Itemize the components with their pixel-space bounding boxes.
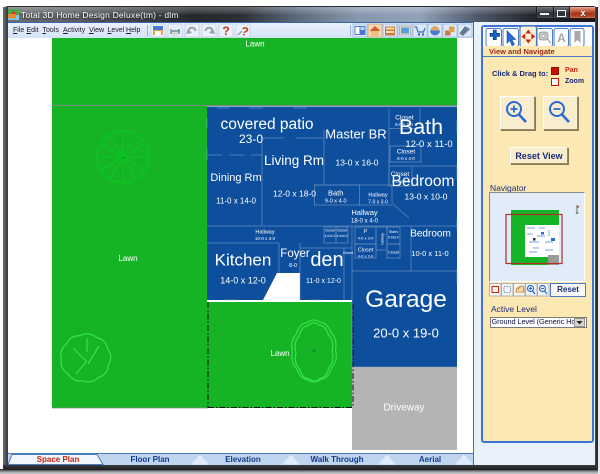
svg-text:Aerial: Aerial: [419, 455, 441, 464]
svg-text:Hallway: Hallway: [255, 230, 275, 236]
svg-text:11-0 x 12-0: 11-0 x 12-0: [306, 278, 341, 285]
svg-text:12-0 x 18-0: 12-0 x 18-0: [273, 189, 316, 199]
svg-text:Hallway: Hallway: [368, 193, 388, 199]
svg-text:23-0: 23-0: [239, 132, 263, 146]
svg-text:11-0 x 14-0: 11-0 x 14-0: [216, 197, 256, 206]
svg-text:Lawn: Lawn: [270, 349, 289, 358]
svg-text:30: 30: [312, 348, 317, 353]
svg-text:Master BR: Master BR: [325, 127, 386, 142]
svg-text:13-0 x 16-0: 13-0 x 16-0: [336, 158, 379, 168]
svg-text:18-0 x 4-0: 18-0 x 4-0: [351, 219, 379, 225]
svg-text:Foyer: Foyer: [280, 248, 310, 260]
svg-text:Lawn: Lawn: [245, 40, 264, 49]
svg-text:Lawn: Lawn: [118, 254, 137, 263]
svg-text:4-0 x 3-0: 4-0 x 3-0: [358, 236, 375, 241]
svg-text:Living Rm: Living Rm: [264, 153, 324, 168]
svg-text:4-0 x 2-0: 4-0 x 2-0: [358, 254, 375, 259]
svg-text:hallway: hallway: [381, 233, 385, 245]
svg-text:Space Plan: Space Plan: [37, 455, 80, 464]
svg-text:10-0 x 3-0: 10-0 x 3-0: [255, 236, 276, 241]
svg-text:A: A: [557, 31, 566, 45]
svg-text:5-0x3-0: 5-0x3-0: [388, 236, 399, 240]
svg-text:7-0 x 3-0: 7-0 x 3-0: [368, 200, 388, 206]
svg-text:4-0x4-0: 4-0x4-0: [325, 234, 336, 238]
svg-text:Bath: Bath: [328, 189, 343, 198]
svg-text:Driveway: Driveway: [383, 403, 424, 414]
svg-text:6-0 x 4-0: 6-0 x 4-0: [397, 156, 415, 161]
svg-text:?: ?: [222, 24, 229, 38]
svg-text:den: den: [310, 249, 343, 271]
svg-text:Closet: Closet: [343, 251, 353, 255]
svg-text:6-0 x 4-0: 6-0 x 4-0: [395, 122, 413, 127]
svg-text:Stairs: Stairs: [389, 230, 398, 234]
svg-text:9-0 x 4-0: 9-0 x 4-0: [325, 199, 347, 205]
svg-text:4-0x4-0: 4-0x4-0: [337, 234, 348, 238]
svg-text:Hallway: Hallway: [351, 208, 378, 217]
svg-text:Bedroom: Bedroom: [392, 173, 455, 190]
svg-text:Kitchen: Kitchen: [215, 251, 272, 270]
svg-text:Walk Through: Walk Through: [310, 455, 363, 464]
svg-text:Garage: Garage: [365, 286, 447, 313]
svg-text:24: 24: [121, 155, 126, 160]
svg-text:Floor Plan: Floor Plan: [130, 455, 169, 464]
svg-text:covered patio: covered patio: [220, 116, 313, 133]
svg-text:8-0: 8-0: [289, 263, 297, 269]
svg-text:Closet: Closet: [337, 229, 347, 233]
svg-text:10-0 x 11-0: 10-0 x 11-0: [411, 249, 448, 258]
svg-text:Closet: Closet: [395, 115, 414, 122]
svg-text:Closet: Closet: [397, 149, 416, 156]
svg-text:Closet: Closet: [388, 250, 400, 255]
svg-text:Bedroom: Bedroom: [410, 229, 451, 240]
svg-text:14-0 x 12-0: 14-0 x 12-0: [220, 276, 266, 286]
svg-text:Closet: Closet: [325, 229, 335, 233]
svg-text:20-0 x 19-0: 20-0 x 19-0: [373, 326, 439, 341]
svg-text:13-0 x 10-0: 13-0 x 10-0: [405, 192, 448, 202]
svg-text:Dining Rm: Dining Rm: [210, 172, 261, 184]
svg-text:Elevation: Elevation: [225, 455, 261, 464]
